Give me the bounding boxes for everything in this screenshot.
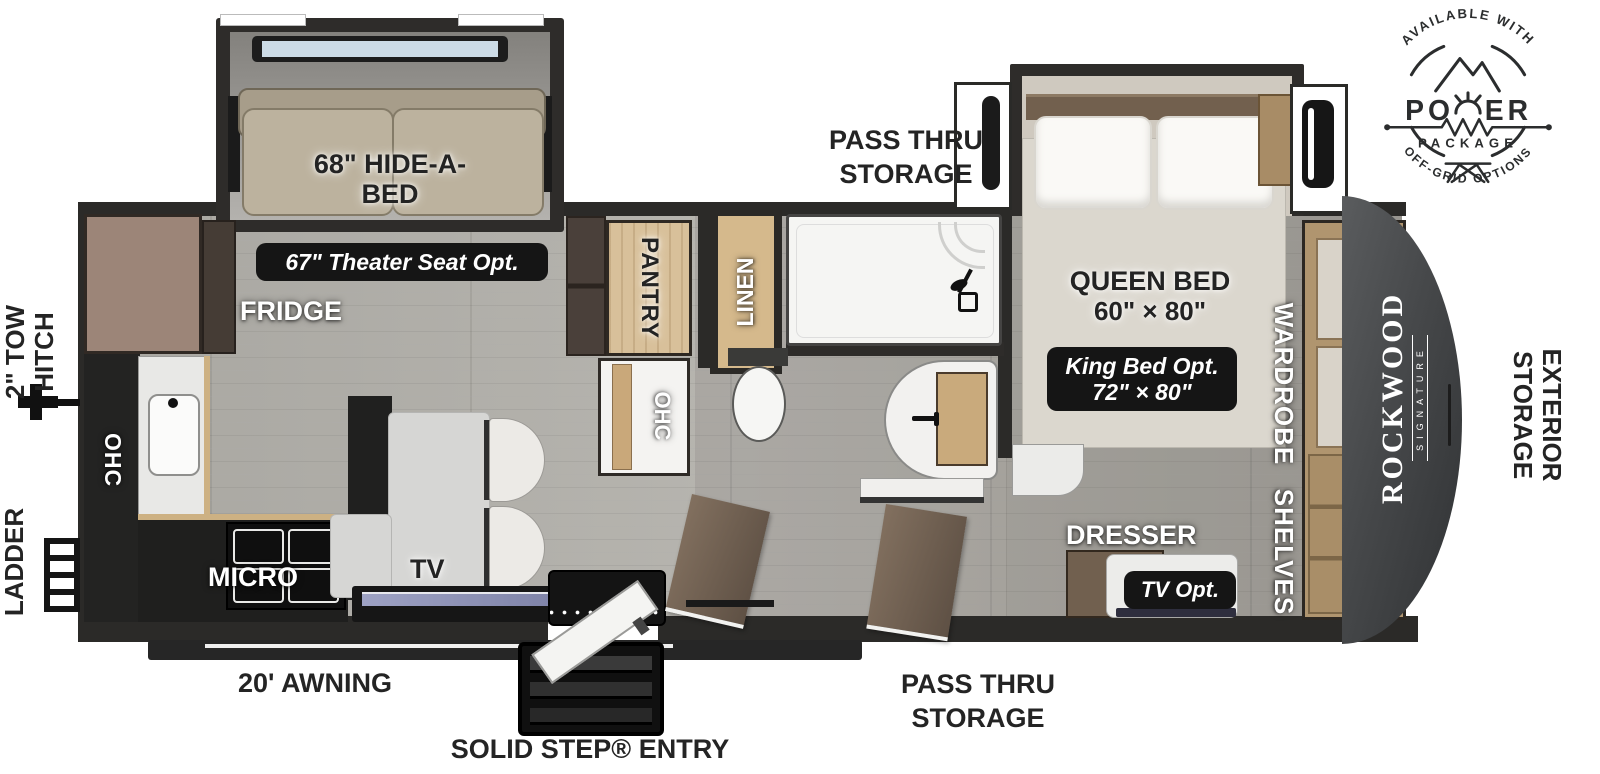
floorplan: 68" HIDE-A- BED 67" Theater Seat Opt. FR… bbox=[0, 0, 1600, 774]
theater-seat-option-label: 67" Theater Seat Opt. bbox=[285, 249, 518, 275]
badge-power-right: ER bbox=[1485, 94, 1532, 126]
king-bed-option-pill: King Bed Opt. 72" × 80" bbox=[1047, 347, 1237, 411]
queen-bed-line1: QUEEN BED bbox=[1070, 266, 1231, 296]
badge-arc-top-text: AVAILABLE WITH bbox=[1398, 6, 1538, 48]
theater-seat-option-pill: 67" Theater Seat Opt. bbox=[256, 243, 548, 281]
fridge-cabinet bbox=[202, 220, 236, 354]
entry-step bbox=[530, 708, 652, 725]
badge-power-left: PO bbox=[1405, 94, 1454, 126]
pantry-ohc-label: OHC bbox=[649, 371, 675, 461]
pass-thru-bottom-line2: STORAGE bbox=[911, 702, 1044, 736]
fridge bbox=[84, 214, 202, 354]
door-sill bbox=[686, 600, 774, 607]
queen-bed-line2: 60" × 80" bbox=[1094, 297, 1206, 326]
hide-a-bed-label: 68" HIDE-A- BED bbox=[290, 146, 490, 212]
micro-label: MICRO bbox=[208, 562, 323, 592]
brand-logo: ROCKWOOD SIGNATURE bbox=[1376, 268, 1428, 528]
sink-faucet-icon bbox=[168, 398, 178, 408]
pass-thru-top-line1: PASS THRU bbox=[829, 124, 983, 158]
king-bed-line2: 72" × 80" bbox=[1092, 379, 1191, 405]
ladder-icon bbox=[44, 538, 80, 612]
shelves-label: SHELVES bbox=[1268, 472, 1298, 632]
bedroom-window-glass bbox=[1308, 108, 1314, 180]
sun-icon bbox=[1456, 93, 1480, 113]
vanity-half-wall bbox=[860, 478, 984, 498]
slideout-window-glass bbox=[262, 41, 498, 57]
fridge-label: FRIDGE bbox=[240, 296, 380, 326]
mountain-icon bbox=[1436, 59, 1500, 91]
bedroom-window bbox=[1302, 100, 1334, 188]
ohc-wood-shelf bbox=[612, 364, 632, 470]
medicine-cabinet bbox=[936, 372, 988, 466]
pillow bbox=[1156, 116, 1274, 210]
cap-door-seam bbox=[1448, 384, 1451, 446]
toilet bbox=[732, 366, 786, 442]
pass-thru-bottom-label: PASS THRU STORAGE bbox=[878, 670, 1078, 734]
lower-counter-wood-edge bbox=[138, 514, 348, 520]
vanity-half-wall-trim bbox=[860, 497, 984, 503]
wardrobe-label: WARDROBE bbox=[1268, 274, 1298, 494]
pass-thru-top-label: PASS THRU STORAGE bbox=[806, 126, 1006, 190]
tow-hitch-line1: 2" TOW bbox=[1, 305, 30, 399]
tow-hitch-line2: HITCH bbox=[30, 312, 59, 391]
hide-a-bed-line1: 68" HIDE-A- bbox=[314, 149, 466, 179]
tv-label: TV bbox=[410, 554, 464, 584]
badge-package-text: PACKAGE bbox=[1418, 135, 1518, 150]
entry-label: SOLID STEP® ENTRY bbox=[440, 734, 740, 764]
tv-screen bbox=[362, 592, 568, 606]
hide-a-bed-line2: BED bbox=[361, 179, 418, 209]
brand-series: SIGNATURE bbox=[1412, 335, 1428, 461]
awning-label: 20' AWNING bbox=[238, 668, 433, 698]
pantry-upper-cabinets bbox=[566, 216, 606, 356]
tv-option-pill: TV Opt. bbox=[1124, 571, 1236, 609]
exterior-storage-label: EXTERIOR STORAGE bbox=[1509, 325, 1565, 505]
pass-thru-top-line2: STORAGE bbox=[839, 158, 972, 192]
slideout-trim bbox=[458, 14, 544, 26]
tv-option-label: TV Opt. bbox=[1141, 577, 1219, 602]
dresser-label: DRESSER bbox=[1066, 520, 1211, 548]
brand-name: ROCKWOOD bbox=[1376, 292, 1410, 504]
queen-bed-label: QUEEN BED 60" × 80" bbox=[1040, 264, 1260, 328]
nightstand bbox=[1258, 94, 1292, 186]
ladder-label: LADDER bbox=[1, 492, 29, 632]
toilet-tank bbox=[728, 348, 788, 366]
king-bed-line1: King Bed Opt. bbox=[1065, 353, 1218, 379]
power-package-badge: AVAILABLE WITH OFF-GRID OPTIONS PO ER PA… bbox=[1370, 4, 1566, 196]
tow-hitch-label: 2" TOW HITCH bbox=[2, 277, 58, 427]
linen-label: LINEN bbox=[733, 237, 759, 347]
entry-step bbox=[530, 682, 652, 699]
shower-head-bracket bbox=[958, 292, 978, 312]
dresser-tv-screen bbox=[1116, 608, 1236, 617]
slideout-trim bbox=[220, 14, 306, 26]
counter-wood-edge bbox=[204, 356, 210, 516]
bed-step bbox=[1012, 444, 1084, 496]
awning-bar bbox=[148, 640, 862, 660]
svg-text:AVAILABLE WITH: AVAILABLE WITH bbox=[1398, 6, 1538, 48]
kitchen-ohc-label: OHC bbox=[99, 410, 125, 510]
exterior-storage-line1: EXTERIOR bbox=[1537, 349, 1566, 482]
vanity-faucet-icon bbox=[934, 412, 939, 426]
exterior-storage-line2: STORAGE bbox=[1508, 351, 1537, 479]
pantry-label: PANTRY bbox=[636, 218, 662, 358]
pass-thru-bottom-line1: PASS THRU bbox=[901, 668, 1055, 702]
pillow bbox=[1034, 116, 1152, 210]
